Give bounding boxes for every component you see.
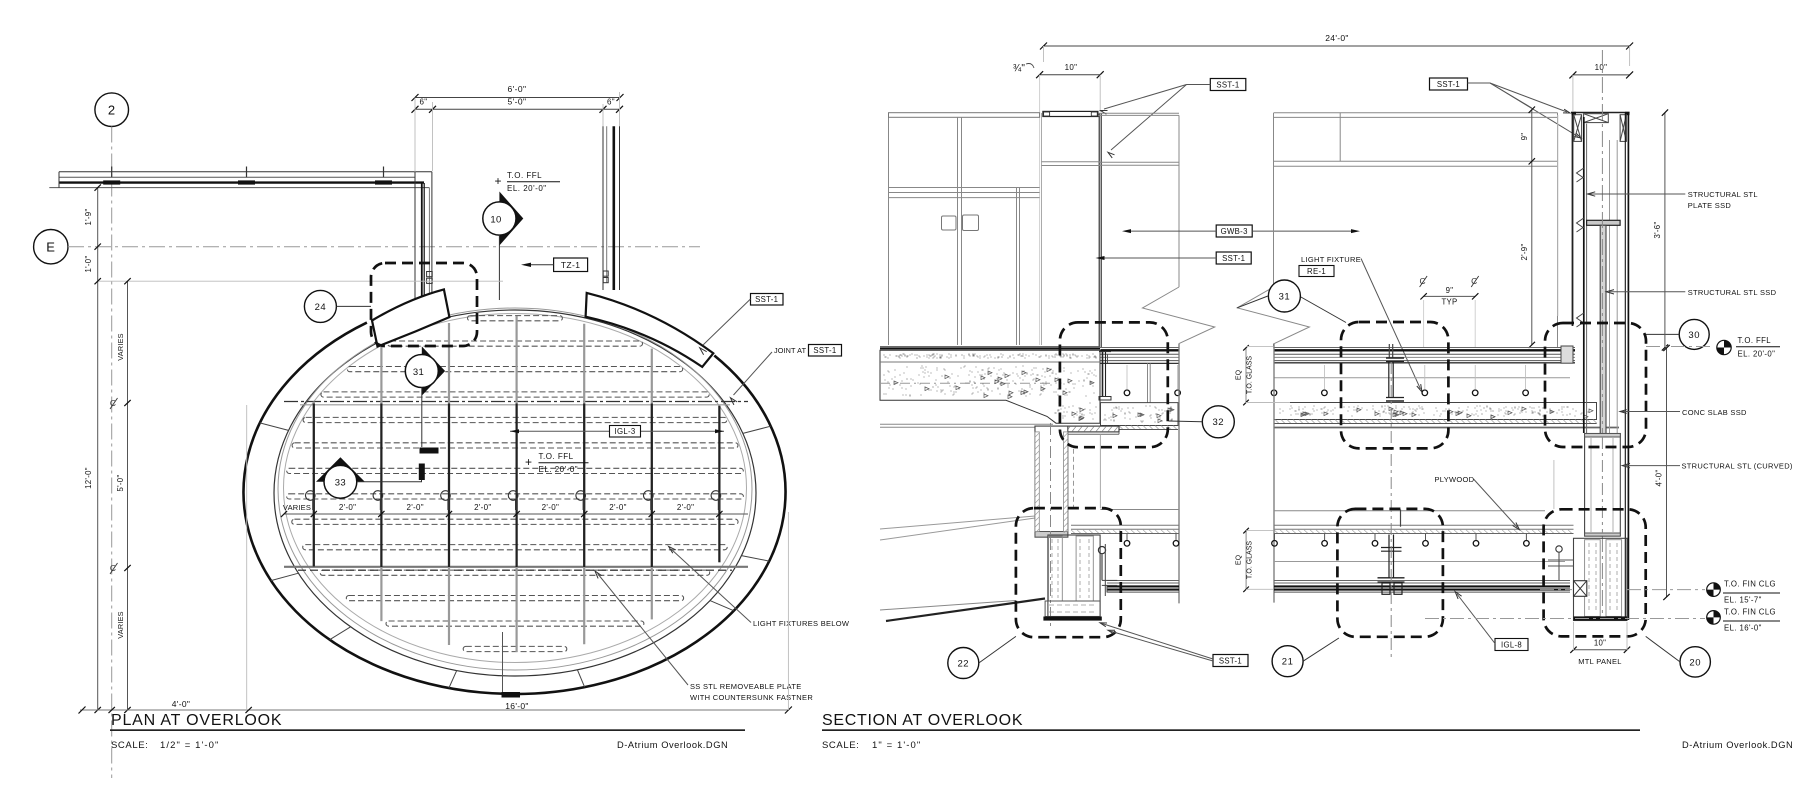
svg-text:SST-1: SST-1	[1437, 80, 1460, 89]
svg-text:T.O. FFL: T.O. FFL	[1738, 336, 1772, 345]
svg-text:IGL-8: IGL-8	[1501, 641, 1522, 650]
svg-text:21: 21	[1282, 657, 1294, 668]
svg-text:LIGHT FIXTURE: LIGHT FIXTURE	[1301, 255, 1361, 264]
svg-text:9": 9"	[1446, 286, 1454, 295]
svg-text:C: C	[110, 563, 116, 573]
svg-text:STRUCTURAL STL: STRUCTURAL STL	[1688, 190, 1758, 199]
svg-text:STRUCTURAL STL (CURVED): STRUCTURAL STL (CURVED)	[1682, 462, 1793, 471]
svg-text:D-Atrium Overlook.DGN: D-Atrium Overlook.DGN	[617, 740, 728, 750]
svg-text:T.O. GLASS: T.O. GLASS	[1247, 541, 1254, 579]
svg-text:RE-1: RE-1	[1307, 267, 1326, 276]
svg-text:4'-0": 4'-0"	[1655, 469, 1664, 486]
svg-text:PLYWOOD: PLYWOOD	[1435, 475, 1475, 484]
svg-text:+: +	[525, 455, 532, 469]
svg-text:SCALE:: SCALE:	[822, 740, 859, 751]
svg-text:31: 31	[1279, 291, 1291, 302]
svg-text:SST-1: SST-1	[1216, 81, 1239, 90]
svg-text:T.O. GLASS: T.O. GLASS	[1247, 356, 1254, 394]
svg-text:PLAN AT OVERLOOK: PLAN AT OVERLOOK	[111, 712, 282, 729]
svg-text:SST-1: SST-1	[813, 346, 836, 355]
svg-text:C: C	[1471, 276, 1477, 286]
svg-text:9": 9"	[1520, 133, 1529, 141]
svg-text:VARIES: VARIES	[283, 503, 311, 512]
svg-text:24'-0": 24'-0"	[1325, 33, 1348, 43]
svg-text:¾": ¾"	[1013, 63, 1026, 74]
svg-text:10": 10"	[1594, 639, 1606, 648]
svg-text:VARIES: VARIES	[116, 611, 125, 638]
svg-text:6'-0": 6'-0"	[508, 84, 527, 94]
svg-text:32: 32	[1213, 417, 1225, 428]
svg-text:1/2" = 1'-0": 1/2" = 1'-0"	[160, 740, 220, 751]
svg-text:WITH COUNTERSUNK FASTNER: WITH COUNTERSUNK FASTNER	[690, 693, 813, 702]
svg-text:SS STL REMOVEABLE PLATE: SS STL REMOVEABLE PLATE	[690, 682, 802, 691]
svg-text:IGL-3: IGL-3	[615, 427, 636, 436]
svg-text:31: 31	[413, 367, 424, 378]
svg-text:30: 30	[1688, 330, 1700, 341]
svg-text:2'-0": 2'-0"	[609, 503, 626, 512]
svg-text:12'-0": 12'-0"	[84, 467, 93, 489]
svg-text:1" = 1'-0": 1" = 1'-0"	[872, 740, 921, 751]
svg-text:33: 33	[335, 478, 346, 489]
svg-text:6": 6"	[419, 98, 427, 107]
svg-text:EL. 15'-7": EL. 15'-7"	[1724, 596, 1762, 605]
svg-text:EL. 20'-0": EL. 20'-0"	[507, 184, 547, 193]
svg-text:2'-9": 2'-9"	[1520, 243, 1529, 260]
svg-text:VARIES: VARIES	[116, 333, 125, 360]
svg-text:SECTION AT OVERLOOK: SECTION AT OVERLOOK	[822, 712, 1023, 729]
svg-text:D-Atrium Overlook.DGN: D-Atrium Overlook.DGN	[1682, 740, 1793, 750]
svg-text:2'-0": 2'-0"	[474, 503, 491, 512]
svg-text:EL. 20'-0": EL. 20'-0"	[539, 465, 579, 474]
svg-text:JOINT AT: JOINT AT	[774, 346, 807, 355]
svg-text:CONC SLAB SSD: CONC SLAB SSD	[1682, 408, 1747, 417]
svg-text:PLATE SSD: PLATE SSD	[1688, 201, 1732, 210]
svg-text:EQ: EQ	[1236, 554, 1243, 565]
svg-text:10": 10"	[1595, 63, 1608, 72]
svg-text:GWB-3: GWB-3	[1221, 227, 1248, 236]
svg-text:C: C	[1420, 276, 1426, 286]
svg-text:MTL PANEL: MTL PANEL	[1578, 657, 1622, 666]
svg-text:LIGHT FIXTURES BELOW: LIGHT FIXTURES BELOW	[753, 619, 850, 628]
svg-text:2'-0": 2'-0"	[406, 503, 423, 512]
svg-text:5'-0": 5'-0"	[116, 474, 125, 491]
svg-text:+: +	[494, 174, 501, 188]
svg-text:22: 22	[958, 658, 970, 669]
svg-text:2'-0": 2'-0"	[677, 503, 694, 512]
svg-text:10": 10"	[1065, 63, 1078, 72]
svg-text:EQ: EQ	[1236, 369, 1243, 380]
svg-text:20: 20	[1689, 657, 1701, 668]
svg-text:TYP: TYP	[1441, 298, 1457, 307]
svg-text:TZ-1: TZ-1	[561, 260, 581, 270]
svg-text:C: C	[110, 398, 116, 408]
svg-text:10: 10	[490, 215, 501, 226]
svg-text:2'-0": 2'-0"	[542, 503, 559, 512]
svg-text:EL. 20'-0": EL. 20'-0"	[1738, 350, 1776, 359]
svg-text:T.O. FIN CLG: T.O. FIN CLG	[1724, 580, 1776, 589]
svg-text:1'-9": 1'-9"	[84, 208, 93, 225]
svg-text:SST-1: SST-1	[1222, 254, 1245, 263]
svg-text:4'-0": 4'-0"	[172, 699, 190, 709]
svg-text:3'-6": 3'-6"	[1653, 221, 1662, 238]
svg-text:1'-0": 1'-0"	[84, 255, 93, 272]
svg-text:2: 2	[108, 102, 116, 117]
svg-text:SST-1: SST-1	[755, 295, 778, 304]
svg-text:5'-0": 5'-0"	[508, 97, 527, 107]
svg-text:T.O. FFL: T.O. FFL	[539, 452, 574, 461]
svg-text:24: 24	[315, 302, 327, 313]
svg-text:STRUCTURAL STL SSD: STRUCTURAL STL SSD	[1688, 288, 1777, 297]
svg-text:T.O. FIN CLG: T.O. FIN CLG	[1724, 608, 1776, 617]
svg-text:EL. 16'-0": EL. 16'-0"	[1724, 624, 1762, 633]
svg-text:E: E	[46, 239, 55, 254]
svg-text:SCALE:: SCALE:	[111, 740, 148, 751]
svg-text:SST-1: SST-1	[1219, 657, 1242, 666]
svg-text:2'-0": 2'-0"	[339, 503, 356, 512]
svg-text:6": 6"	[607, 98, 615, 107]
svg-text:T.O. FFL: T.O. FFL	[507, 171, 542, 180]
